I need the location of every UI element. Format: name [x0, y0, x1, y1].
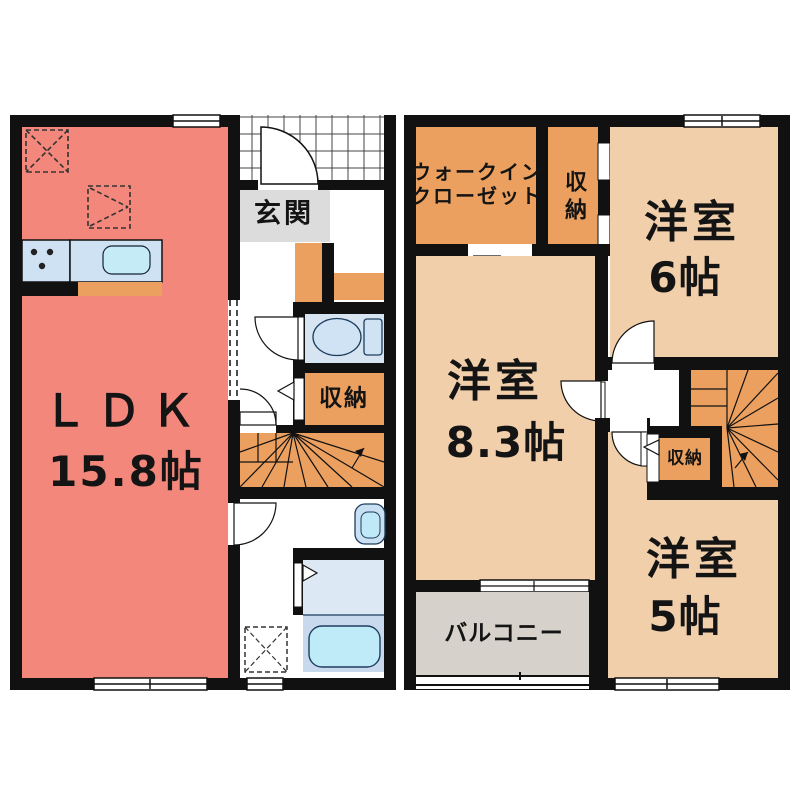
kitchen-counter — [22, 240, 162, 296]
room83-size-label: 8.3帖 — [446, 422, 566, 464]
closet-small-label: 収納 — [667, 451, 703, 468]
stove — [22, 240, 70, 282]
balcony-label: バルコニー — [444, 623, 564, 646]
genkan-label: 玄関 — [254, 201, 314, 228]
storage-1f-label: 収納 — [319, 388, 369, 411]
room5-name-label: 洋室 — [646, 538, 742, 582]
toilet-bowl — [313, 319, 361, 356]
ldk-hall-opening — [228, 300, 240, 400]
bathtub — [309, 626, 380, 667]
kitchen-sink — [103, 246, 150, 274]
room6-name-label: 洋室 — [644, 201, 740, 245]
room83-name-label: 洋室 — [447, 360, 543, 404]
floorplan-canvas: ＬＤＫ 15.8帖 玄関 収納 ウォークイン クローゼット 収納 洋室 6帖 洋… — [0, 0, 800, 800]
staircase-1f — [240, 433, 384, 499]
room5-size-label: 5帖 — [648, 596, 721, 638]
ldk-size-label: 15.8帖 — [48, 451, 204, 493]
stairs-door-leaf — [240, 412, 276, 425]
room6-size-label: 6帖 — [648, 257, 721, 299]
closet-top-label: 収納 — [562, 170, 584, 226]
walk-in-closet-label-line2: クローゼット — [411, 186, 543, 206]
washing-machine-space — [245, 627, 287, 672]
ldk-name-label: ＬＤＫ — [43, 390, 205, 434]
walk-in-closet-label-line1: ウォークイン — [411, 162, 543, 182]
bathroom — [293, 548, 384, 672]
toilet-tank — [364, 319, 382, 355]
